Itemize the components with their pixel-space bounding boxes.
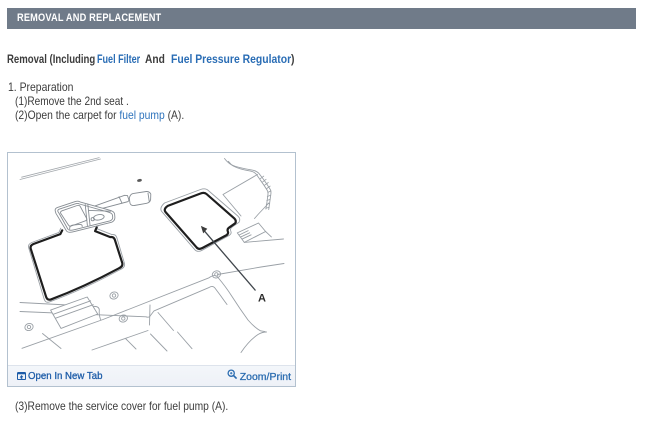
svg-text:A: A: [258, 293, 266, 305]
